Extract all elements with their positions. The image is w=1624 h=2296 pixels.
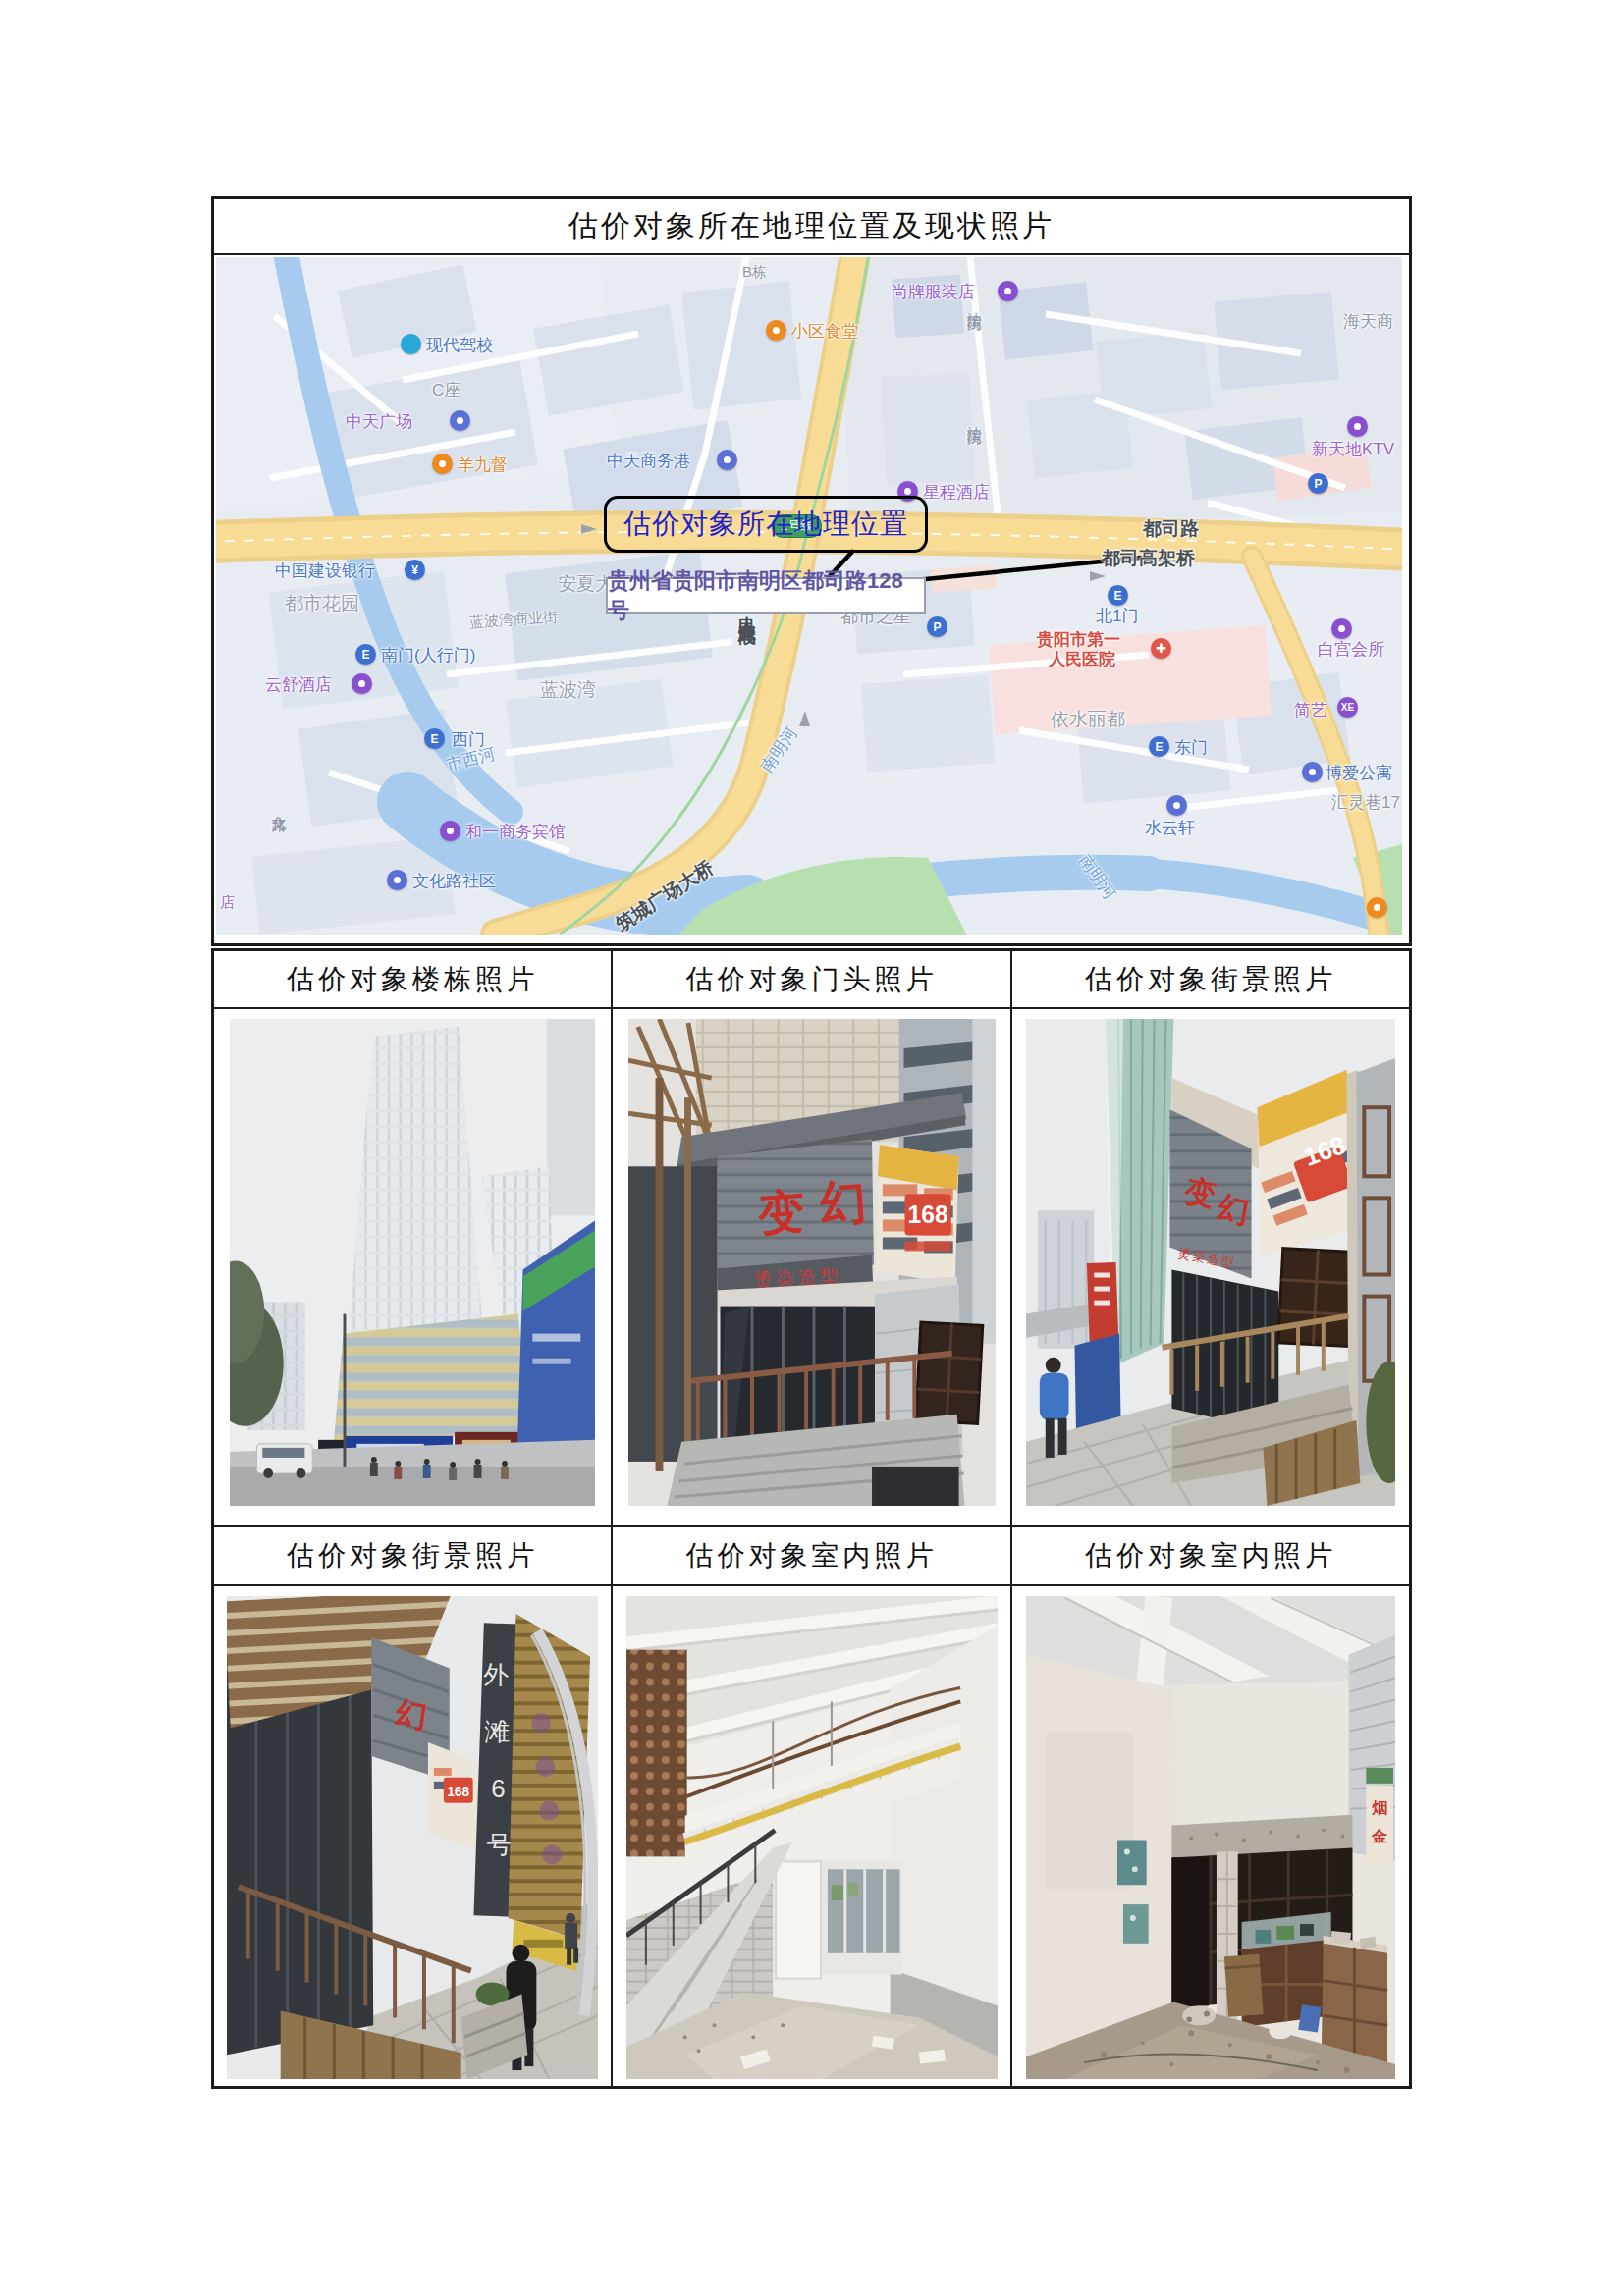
sign-char: 幻 bbox=[1215, 1190, 1252, 1229]
map-label: 蓝波湾 bbox=[540, 679, 596, 701]
parking-poi-icon: P bbox=[927, 616, 947, 637]
map-label: 新天地KTV bbox=[1312, 440, 1394, 459]
poster-char: 烟 bbox=[1371, 1799, 1387, 1816]
restaurant-poi-icon bbox=[1367, 897, 1387, 918]
gate-poi-icon: E bbox=[355, 644, 376, 665]
map-label: B栋 bbox=[742, 263, 767, 280]
location-callout-text: 估价对象所在地理位置 bbox=[623, 506, 908, 543]
map-label-hospital: 贵阳市第一 bbox=[1037, 630, 1120, 650]
photo-grid-table: 估价对象楼栋照片 估价对象门头照片 估价对象街景照片 bbox=[211, 948, 1412, 2089]
header-streetview-photo-2: 估价对象街景照片 bbox=[214, 1527, 613, 1586]
header-storefront-photo: 估价对象门头照片 bbox=[613, 951, 1012, 1009]
map-label: 中天广场 bbox=[346, 412, 412, 432]
residence-poi-icon bbox=[1166, 795, 1187, 816]
page-title: 估价对象所在地理位置及现状照片 bbox=[568, 206, 1055, 246]
cell-storefront-photo: 变 幻 烫染造型 168 bbox=[613, 1009, 1012, 1527]
map-label: 南门(人行门) bbox=[381, 646, 475, 666]
cell-building-photo bbox=[214, 1009, 613, 1527]
hospital-cross-icon: ✚ bbox=[1151, 638, 1171, 659]
map-table-header-row: 估价对象所在地理位置及现状照片 bbox=[214, 199, 1409, 255]
location-callout: 估价对象所在地理位置 bbox=[604, 496, 928, 553]
map-label: C座 bbox=[432, 381, 460, 400]
map-image: 现代驾校 B栋 尚牌服装店 小区食堂 海天商 法院街 法院街 C座 中天广场 羊… bbox=[216, 257, 1402, 935]
header-indoor-photo-1: 估价对象室内照片 bbox=[613, 1527, 1012, 1586]
community-poi-icon bbox=[387, 870, 407, 890]
driving-school-poi-icon bbox=[401, 334, 421, 354]
map-label: 北1门 bbox=[1096, 607, 1138, 626]
map-label: 店 bbox=[220, 893, 235, 910]
map-label: 和一商务宾馆 bbox=[465, 823, 566, 842]
report-page: 估价对象所在地理位置及现状照片 bbox=[0, 0, 1624, 2296]
map-label-road: 都司路 bbox=[1143, 518, 1199, 540]
building-photo bbox=[230, 1019, 595, 1506]
map-label: 中天商务港 bbox=[607, 452, 690, 471]
map-label-hospital: 人民医院 bbox=[1049, 650, 1115, 669]
vertical-sign-char: 滩 bbox=[485, 1718, 511, 1745]
streetview-photo-1: 变 幻 烫染造型 168 bbox=[1026, 1019, 1395, 1506]
header-streetview-photo: 估价对象街景照片 bbox=[1012, 951, 1409, 1009]
indoor-photo-2: 烟 金 bbox=[1026, 1596, 1395, 2079]
header-building-photo: 估价对象楼栋照片 bbox=[214, 951, 613, 1009]
map-label-road: 法院街 bbox=[966, 300, 983, 306]
map-label: 博爱公寓 bbox=[1326, 764, 1392, 783]
sign-char: 幻 bbox=[818, 1176, 868, 1231]
map-label: 依水丽都 bbox=[1051, 709, 1125, 730]
gate-poi-icon: E bbox=[1149, 736, 1169, 757]
plaza-poi-icon bbox=[450, 410, 470, 431]
bank-poi-icon: ¥ bbox=[405, 560, 425, 580]
parking-poi-icon: P bbox=[1308, 473, 1328, 494]
map-label: 尚牌服装店 bbox=[892, 283, 975, 302]
map-label-road: 都司高架桥 bbox=[1102, 548, 1195, 569]
map-label: 白宫会所 bbox=[1318, 640, 1384, 660]
sign-char: 变 bbox=[755, 1186, 806, 1241]
map-label-road: 法院街 bbox=[966, 414, 983, 420]
map-label: 水云轩 bbox=[1145, 819, 1195, 838]
ktv-poi-icon bbox=[1347, 416, 1368, 437]
map-label: 简艺 bbox=[1294, 701, 1327, 721]
clothing-shop-poi-icon bbox=[998, 281, 1018, 301]
map-label: 文化路社区 bbox=[412, 872, 496, 891]
sign-number: 168 bbox=[907, 1201, 947, 1228]
map-label: 羊九督 bbox=[458, 455, 508, 475]
apartment-poi-icon bbox=[1302, 762, 1323, 782]
vertical-sign-char: 号 bbox=[487, 1831, 513, 1858]
map-label: 现代驾校 bbox=[426, 336, 493, 355]
gate-poi-icon: E bbox=[1108, 585, 1128, 606]
header-indoor-photo-2: 估价对象室内照片 bbox=[1012, 1527, 1409, 1586]
map-label: 星程酒店 bbox=[923, 483, 990, 503]
streetview-photo-2: 幻 168 外 滩 6 号 bbox=[227, 1596, 598, 2079]
map-label: 汇灵巷17 bbox=[1331, 793, 1400, 813]
map-label: 都市花园 bbox=[285, 593, 359, 614]
map-label: 小区食堂 bbox=[791, 322, 858, 342]
sign-char: 幻 bbox=[394, 1695, 429, 1734]
hotel-poi-icon bbox=[440, 821, 460, 841]
restaurant-poi-icon bbox=[432, 454, 453, 474]
canteen-poi-icon bbox=[766, 320, 786, 341]
vertical-sign-char: 6 bbox=[491, 1775, 505, 1802]
sign-char: 变 bbox=[1181, 1173, 1218, 1212]
map-label: 云舒酒店 bbox=[265, 675, 332, 695]
map-label: 中国建设银行 bbox=[275, 561, 375, 581]
address-pin-text: 贵州省贵阳市南明区都司路128号 bbox=[608, 566, 924, 625]
club-poi-icon bbox=[1331, 618, 1352, 639]
sign-number: 168 bbox=[447, 1784, 469, 1799]
map-label: 东门 bbox=[1174, 738, 1208, 758]
cell-streetview-photo-2: 幻 168 外 滩 6 号 bbox=[214, 1586, 613, 2086]
gate-poi-icon: E bbox=[424, 728, 445, 749]
address-pin-label: 贵州省贵阳市南明区都司路128号 bbox=[606, 577, 926, 614]
location-map-table: 估价对象所在地理位置及现状照片 bbox=[211, 196, 1412, 946]
business-port-poi-icon bbox=[717, 450, 737, 470]
storefront-photo: 变 幻 烫染造型 168 bbox=[628, 1019, 996, 1506]
indoor-photo-1 bbox=[626, 1596, 998, 2079]
cell-indoor-photo-2: 烟 金 bbox=[1012, 1586, 1409, 2086]
hotel-poi-icon bbox=[352, 673, 372, 694]
cell-indoor-photo-1 bbox=[613, 1586, 1012, 2086]
cell-streetview-photo-1: 变 幻 烫染造型 168 bbox=[1012, 1009, 1409, 1527]
vertical-sign-char: 外 bbox=[483, 1661, 510, 1688]
map-label: 海天商 bbox=[1343, 312, 1393, 332]
map-label-road: 文化路 bbox=[271, 803, 288, 809]
poster-char: 金 bbox=[1371, 1828, 1387, 1844]
xe-poi-icon: XE bbox=[1337, 697, 1358, 718]
